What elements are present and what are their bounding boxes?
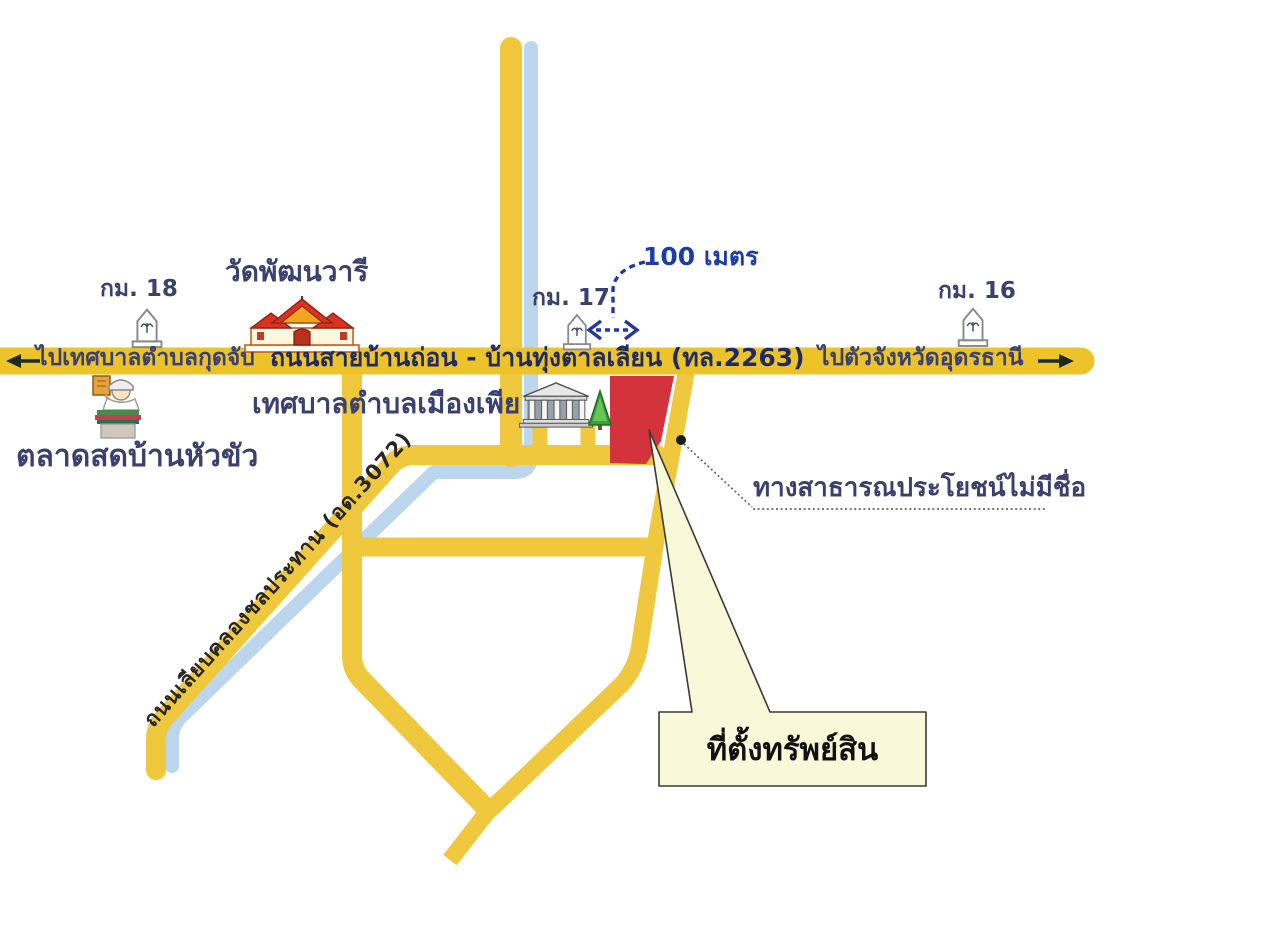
main-road-name-label: ถนนสายบ้านถ่อน - บ้านทุ่งตาลเลียน (ทล.22… [270, 344, 805, 372]
distance-label: 100 เมตร [643, 243, 759, 271]
location-map: กม. 18 กม. 17 กม. 16 วัดพัฒนวารี 100 เมต… [0, 0, 1280, 948]
town-hall-icon [517, 381, 595, 431]
tree-icon [586, 389, 614, 431]
public-way-label: ทางสาธารณประโยชน์ไม่มีชื่อ [753, 474, 1086, 503]
map-graphics [0, 0, 1280, 948]
km18-milestone-icon [126, 302, 168, 350]
south-stub-road [450, 806, 492, 860]
main-road-west-label: ไปเทศบาลตำบลกุดจับ [36, 346, 255, 371]
km16-label: กม. 16 [938, 279, 1016, 304]
property-callout-label: ที่ตั้งทรัพย์สิน [659, 712, 926, 786]
km16-milestone-icon [953, 301, 993, 349]
market-vendor-icon [80, 374, 152, 442]
market-label: ตลาดสดบ้านหัวขัว [16, 440, 258, 473]
temple-label: วัดพัฒนวารี [225, 257, 368, 288]
km18-label: กม. 18 [100, 277, 178, 302]
main-road-east-label: ไปตัวจังหวัดอุดรธานี [818, 346, 1024, 371]
km17-label: กม. 17 [532, 286, 610, 311]
municipality-label: เทศบาลตำบลเมืองเพีย [252, 389, 520, 420]
